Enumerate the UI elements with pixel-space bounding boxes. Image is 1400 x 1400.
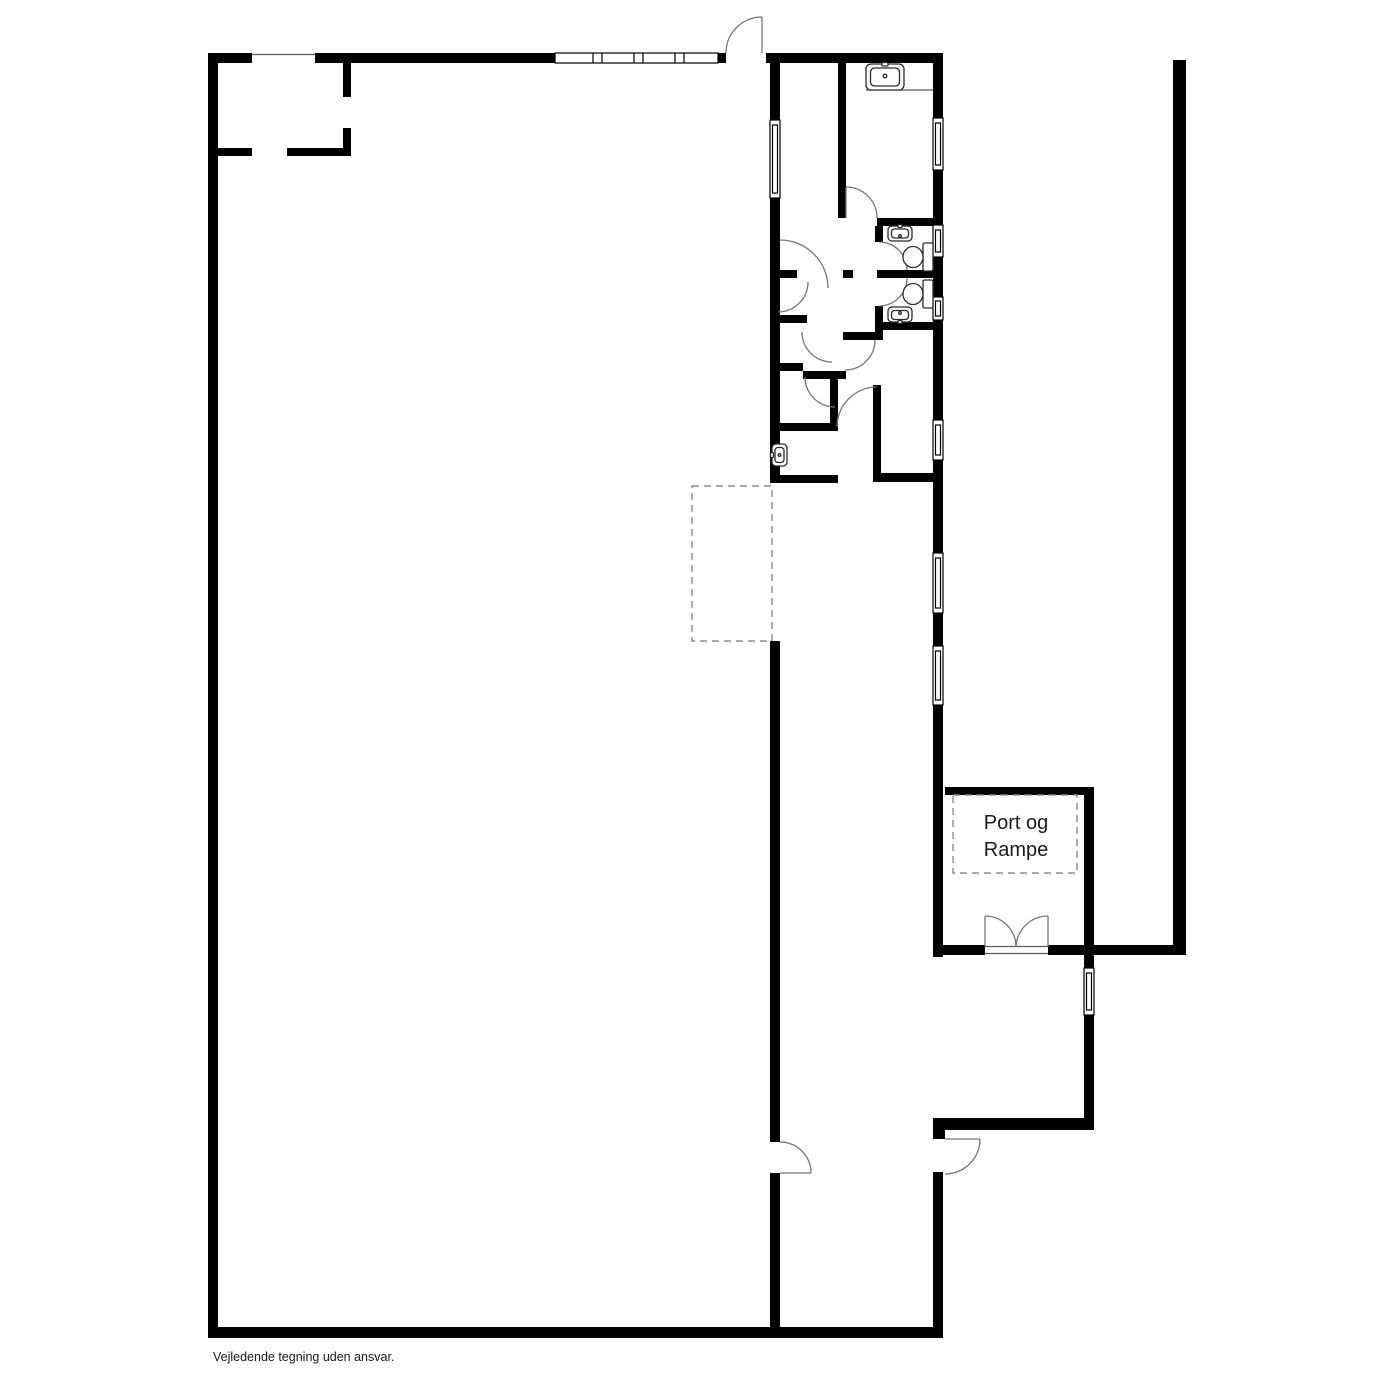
dashed-opening-zone — [692, 486, 772, 641]
window-right-2 — [933, 225, 943, 257]
door-bottom-right-room — [945, 1139, 980, 1174]
wall-far-right — [1173, 60, 1186, 955]
wall-right-office-1 — [933, 53, 943, 118]
mid-stub-west — [770, 270, 797, 278]
window-right-1 — [933, 118, 943, 170]
wall-right-office-6 — [933, 613, 943, 646]
wall-top-seg3 — [718, 53, 726, 63]
window-top-band — [555, 53, 718, 63]
corridor-wall-upper — [770, 641, 780, 1142]
port-rampe-label-line2: Rampe — [984, 839, 1048, 861]
sw-wall-h5 — [770, 475, 838, 483]
wall-right-office-7 — [933, 705, 943, 957]
wall-port-bottom-2 — [1048, 945, 1186, 955]
door-kitchen-room — [846, 187, 877, 218]
corridor-wall-lower — [770, 1173, 780, 1338]
office-wall-a-bottom — [770, 198, 780, 483]
exterior-walls — [208, 53, 1186, 1338]
door-hall-north — [780, 240, 828, 288]
port-rampe-label-line1: Port og — [984, 812, 1048, 834]
bath2-bottom-wall — [877, 322, 933, 330]
wall-right-office-4 — [933, 320, 943, 420]
niche-wall-h2 — [287, 148, 351, 156]
sink-bath-1 — [888, 225, 912, 242]
wall-right-office-3 — [933, 257, 943, 297]
sw-wall-h4 — [770, 423, 838, 431]
sw-wall-h2 — [770, 363, 803, 371]
window-right-6 — [933, 646, 943, 705]
wall-top-seg1 — [208, 53, 252, 63]
double-door-port-left — [985, 916, 1016, 947]
floor-plan: Port og Rampe Vejledende tegning uden an… — [0, 0, 1400, 1400]
door-room-south-center — [837, 387, 877, 427]
labels: Port og Rampe Vejledende tegning uden an… — [213, 812, 1048, 1364]
windows — [555, 53, 1094, 1015]
door-hall-southeast — [845, 340, 875, 370]
wall-bottom-outer — [208, 1327, 943, 1338]
window-wall-a — [770, 120, 780, 198]
bath1-left-wall — [875, 226, 883, 242]
niche-wall-v1 — [343, 63, 351, 97]
window-right-4 — [933, 420, 943, 460]
wall-port-right — [1084, 787, 1094, 945]
sink-office — [771, 444, 788, 466]
wall-below-port-2 — [1084, 1015, 1094, 1128]
wall-top-seg2 — [315, 53, 555, 63]
sw-wall-h1 — [770, 315, 807, 323]
wall-right-office-5 — [933, 460, 943, 553]
sink-kitchen — [866, 63, 904, 91]
port-rampe-dashed-zone — [953, 795, 1077, 873]
window-right-3 — [933, 297, 943, 320]
wall-top-seg4 — [766, 53, 943, 63]
niche-wall-h1 — [218, 148, 252, 156]
fixtures — [771, 63, 934, 467]
wall-port-top — [945, 787, 1092, 795]
toilet-1 — [903, 243, 933, 271]
wall-step-stub — [933, 1130, 945, 1139]
office-wall-b — [838, 63, 846, 218]
office-wall-a-top — [770, 63, 780, 120]
wall-step-horizontal — [933, 1118, 1094, 1130]
bath1-top-wall — [877, 218, 933, 226]
door-hall-west — [778, 282, 808, 312]
hall-wall-piece — [843, 332, 875, 340]
double-door-port-right — [1016, 916, 1048, 947]
door-main-entrance — [726, 17, 762, 53]
sink-bath-2 — [888, 307, 912, 324]
wall-right-office-2 — [933, 170, 943, 225]
sw-wall-v2 — [873, 385, 881, 482]
sw-wall-h3 — [803, 371, 846, 379]
window-right-5 — [933, 553, 943, 613]
wall-port-bottom-1 — [933, 945, 985, 955]
sw-wall-h6 — [875, 473, 933, 482]
mid-wall-piece — [843, 270, 853, 278]
disclaimer-text: Vejledende tegning uden ansvar. — [213, 1350, 394, 1364]
door-corridor-to-hall — [780, 1142, 811, 1173]
wall-below-port-1 — [1084, 955, 1094, 968]
door-hall-southwest — [802, 332, 832, 362]
window-below-port — [1084, 968, 1094, 1015]
interior-walls — [218, 63, 933, 1338]
wall-right-lower — [933, 1172, 943, 1338]
floor-plan-page: Port og Rampe Vejledende tegning uden an… — [0, 0, 1400, 1400]
sw-wall-v1 — [830, 371, 838, 427]
wall-left-outer — [208, 53, 218, 1338]
toilet-2 — [903, 280, 933, 308]
thin-lines — [252, 55, 1048, 954]
